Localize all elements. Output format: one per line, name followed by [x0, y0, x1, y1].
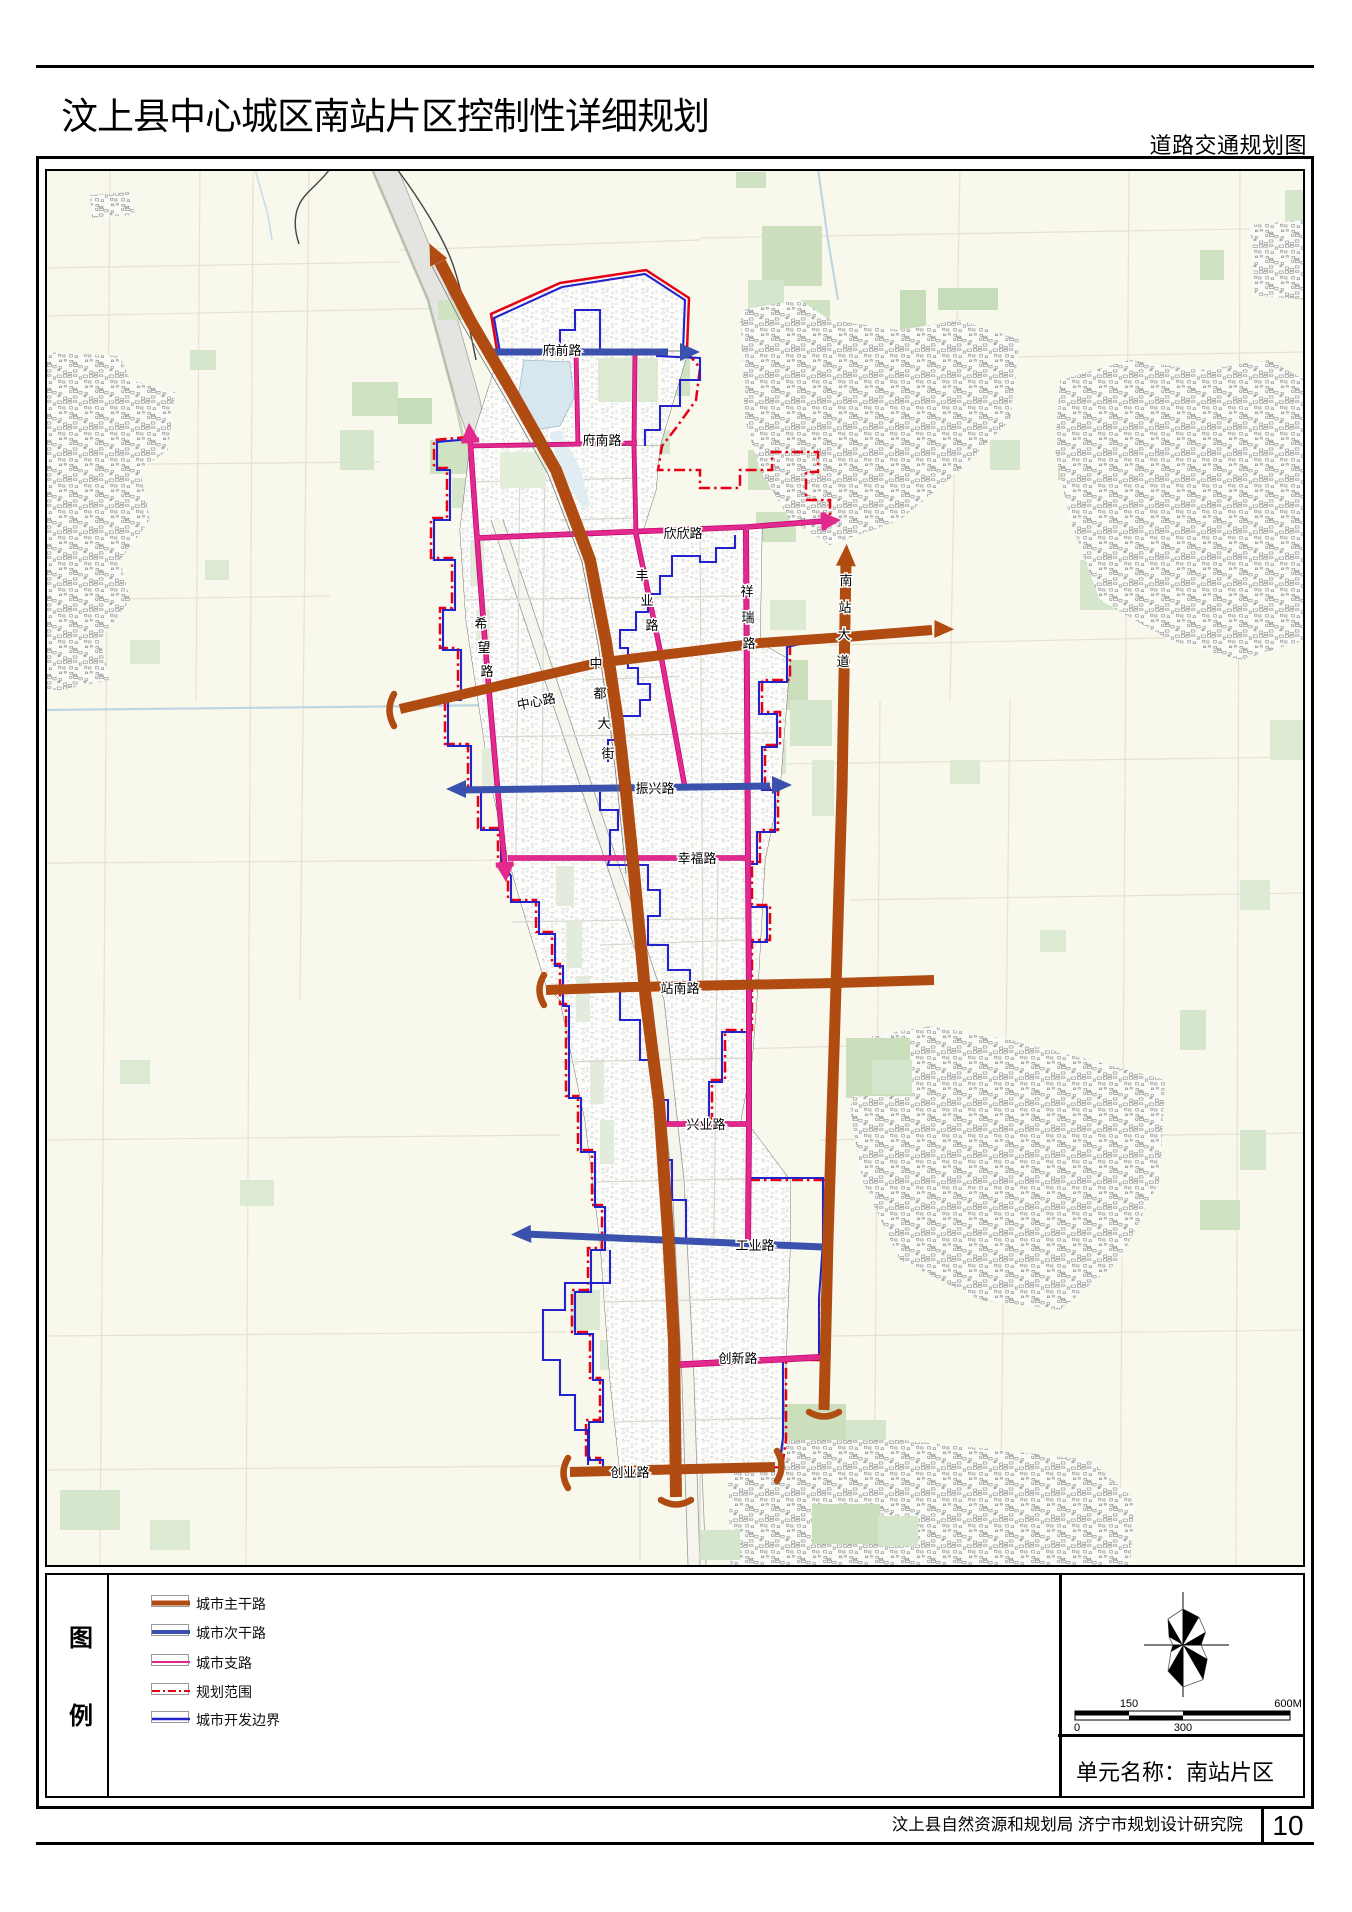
- svg-text:300: 300: [1174, 1722, 1192, 1734]
- svg-text:150: 150: [1120, 1698, 1138, 1710]
- svg-text:600M: 600M: [1274, 1698, 1302, 1710]
- svg-text:0: 0: [1074, 1722, 1080, 1734]
